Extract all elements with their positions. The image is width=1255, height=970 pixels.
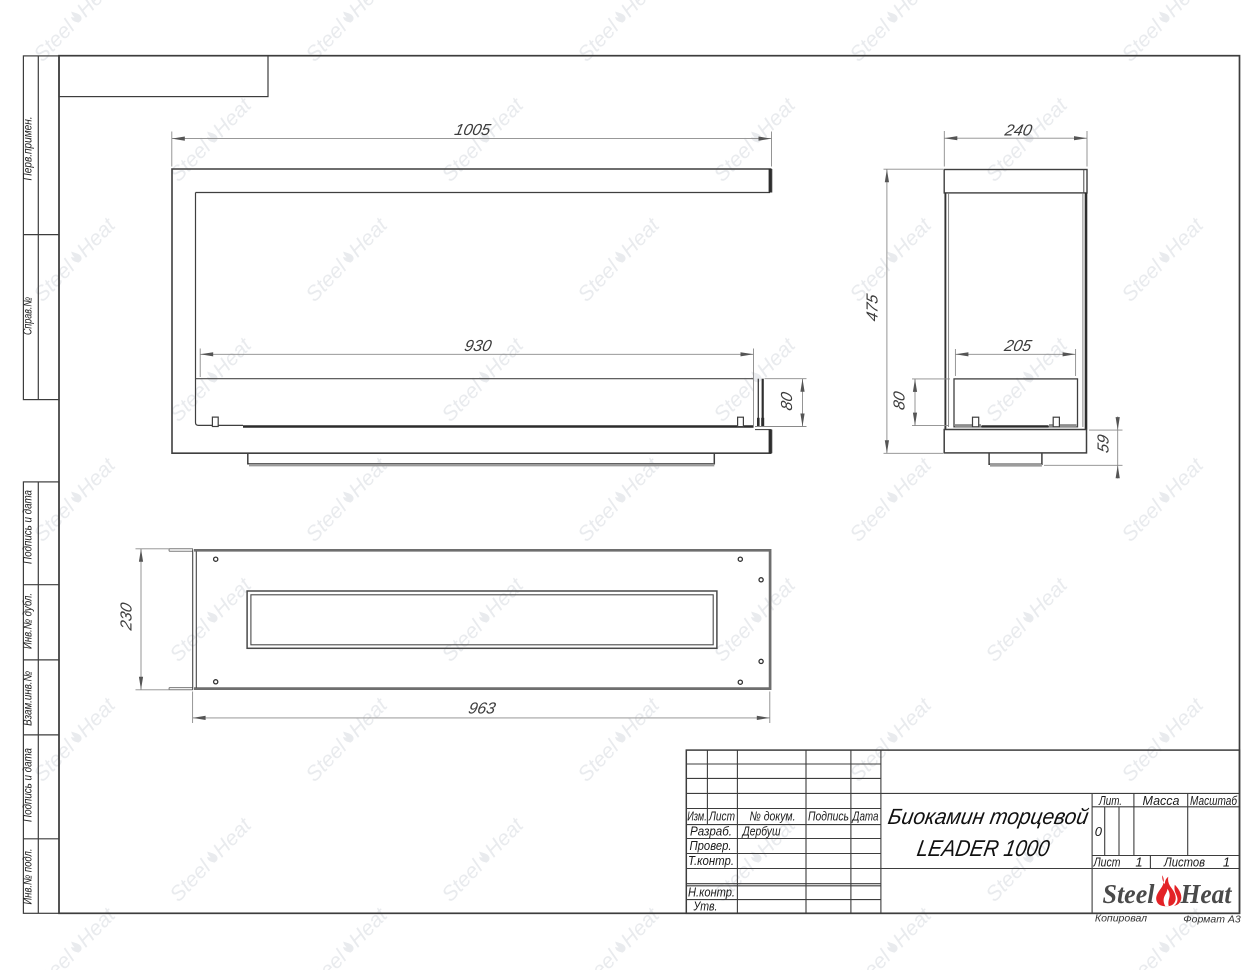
svg-text:Лист: Лист (708, 808, 735, 823)
svg-text:Подпись: Подпись (808, 808, 849, 823)
svg-text:Биокамин торцевой: Биокамин торцевой (886, 804, 1090, 829)
svg-text:Дербуш: Дербуш (741, 823, 781, 838)
svg-text:205: 205 (1002, 337, 1034, 355)
svg-text:Провер.: Провер. (690, 838, 732, 853)
svg-text:Подпись и дата: Подпись и дата (23, 748, 35, 822)
svg-text:963: 963 (467, 700, 497, 718)
svg-text:Н.контр.: Н.контр. (688, 885, 735, 900)
svg-text:Steel: Steel (1103, 879, 1155, 909)
svg-text:Инв.№ подл.: Инв.№ подл. (23, 849, 35, 905)
svg-text:Лит.: Лит. (1098, 793, 1122, 808)
svg-text:Лист: Лист (1093, 855, 1121, 870)
svg-text:LEADER 1000: LEADER 1000 (915, 835, 1052, 861)
svg-text:Справ.№: Справ.№ (23, 297, 35, 335)
svg-text:Утв.: Утв. (693, 899, 718, 914)
svg-text:Масса: Масса (1143, 793, 1180, 808)
svg-text:1: 1 (1135, 855, 1142, 870)
svg-text:Листов: Листов (1163, 855, 1205, 870)
svg-text:№ докум.: № докум. (750, 808, 796, 823)
svg-text:Перв.примен.: Перв.примен. (23, 117, 35, 181)
svg-text:Изм.: Изм. (687, 808, 707, 823)
svg-text:Разраб.: Разраб. (690, 823, 732, 838)
svg-text:Копировал: Копировал (1095, 913, 1147, 925)
svg-text:59: 59 (1095, 433, 1113, 455)
svg-text:Подпись и дата: Подпись и дата (23, 490, 35, 564)
svg-text:Взам.инв.№: Взам.инв.№ (23, 670, 35, 725)
svg-text:0: 0 (1095, 824, 1103, 839)
svg-text:930: 930 (463, 337, 493, 355)
svg-text:Heat: Heat (1180, 879, 1233, 909)
svg-text:230: 230 (118, 601, 136, 632)
svg-text:Дата: Дата (851, 808, 879, 823)
svg-text:80: 80 (778, 391, 796, 413)
svg-text:475: 475 (864, 292, 882, 323)
svg-text:Инв.№ дубл.: Инв.№ дубл. (23, 593, 35, 649)
svg-text:1: 1 (1223, 855, 1230, 870)
svg-text:Т.контр.: Т.контр. (688, 853, 734, 868)
svg-text:1005: 1005 (453, 121, 493, 139)
svg-text:240: 240 (1002, 121, 1033, 139)
svg-text:Масштаб: Масштаб (1190, 793, 1238, 808)
svg-text:80: 80 (891, 390, 909, 412)
svg-text:Формат А3: Формат А3 (1183, 914, 1241, 926)
